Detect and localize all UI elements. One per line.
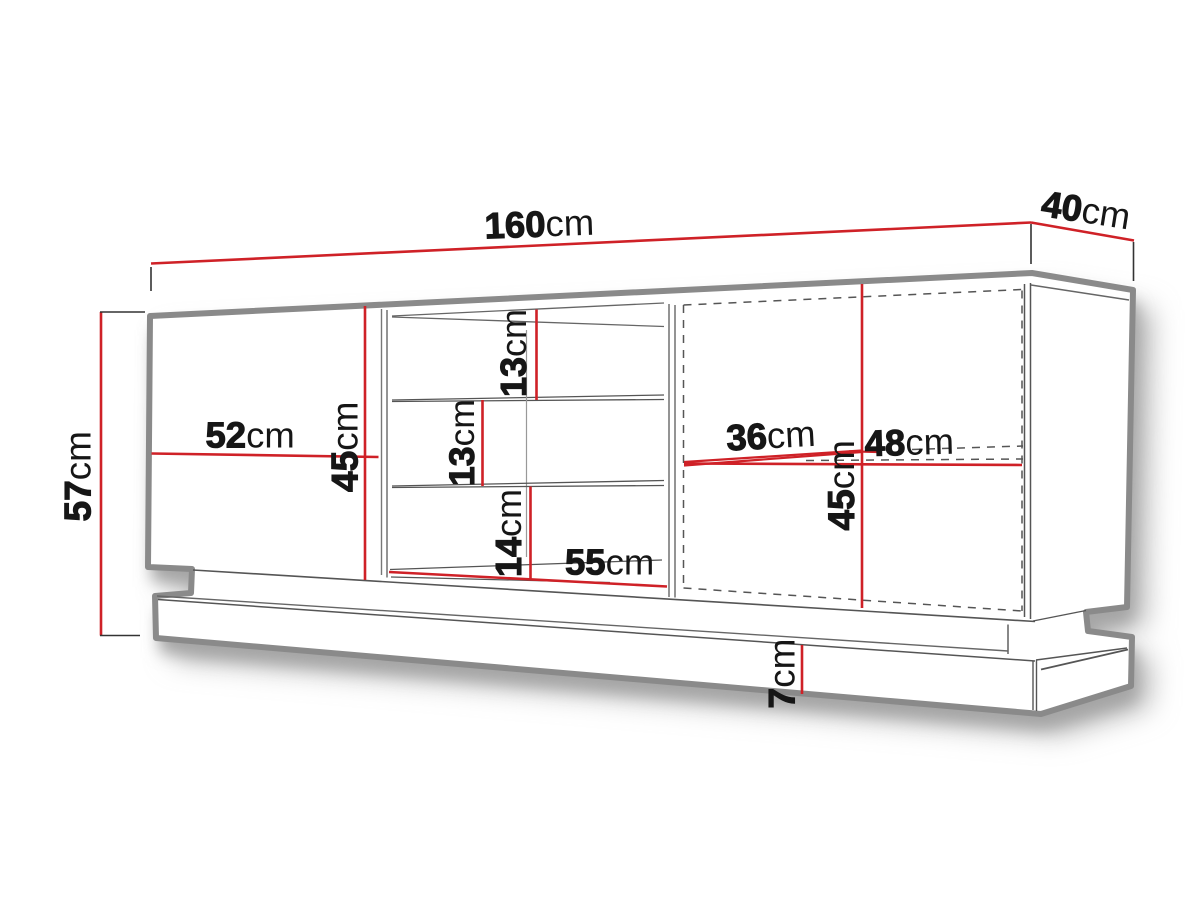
svg-text:36cm: 36cm [725,413,816,459]
svg-text:13cm: 13cm [442,399,482,486]
svg-text:57cm: 57cm [58,431,99,521]
svg-text:13cm: 13cm [493,309,534,397]
svg-text:7cm: 7cm [762,639,803,709]
svg-text:52cm: 52cm [206,415,295,456]
svg-text:55cm: 55cm [565,542,654,583]
svg-text:14cm: 14cm [488,489,529,577]
svg-text:45cm: 45cm [821,440,862,530]
svg-text:160cm: 160cm [484,202,595,247]
svg-text:45cm: 45cm [325,402,366,492]
svg-text:48cm: 48cm [864,421,954,464]
